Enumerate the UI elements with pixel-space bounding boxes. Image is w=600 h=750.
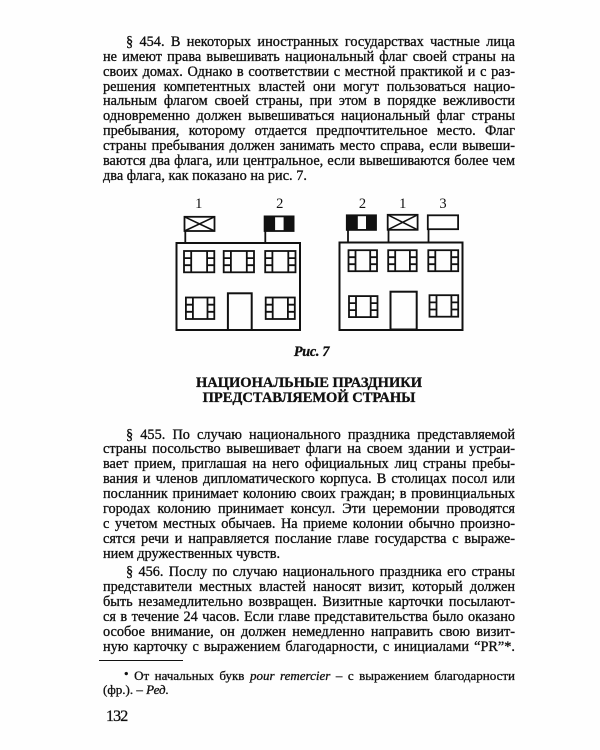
svg-text:1: 1 bbox=[195, 196, 202, 212]
svg-text:2: 2 bbox=[359, 196, 366, 212]
svg-text:1: 1 bbox=[399, 196, 406, 212]
svg-text:3: 3 bbox=[439, 196, 446, 212]
svg-text:2: 2 bbox=[276, 196, 283, 212]
